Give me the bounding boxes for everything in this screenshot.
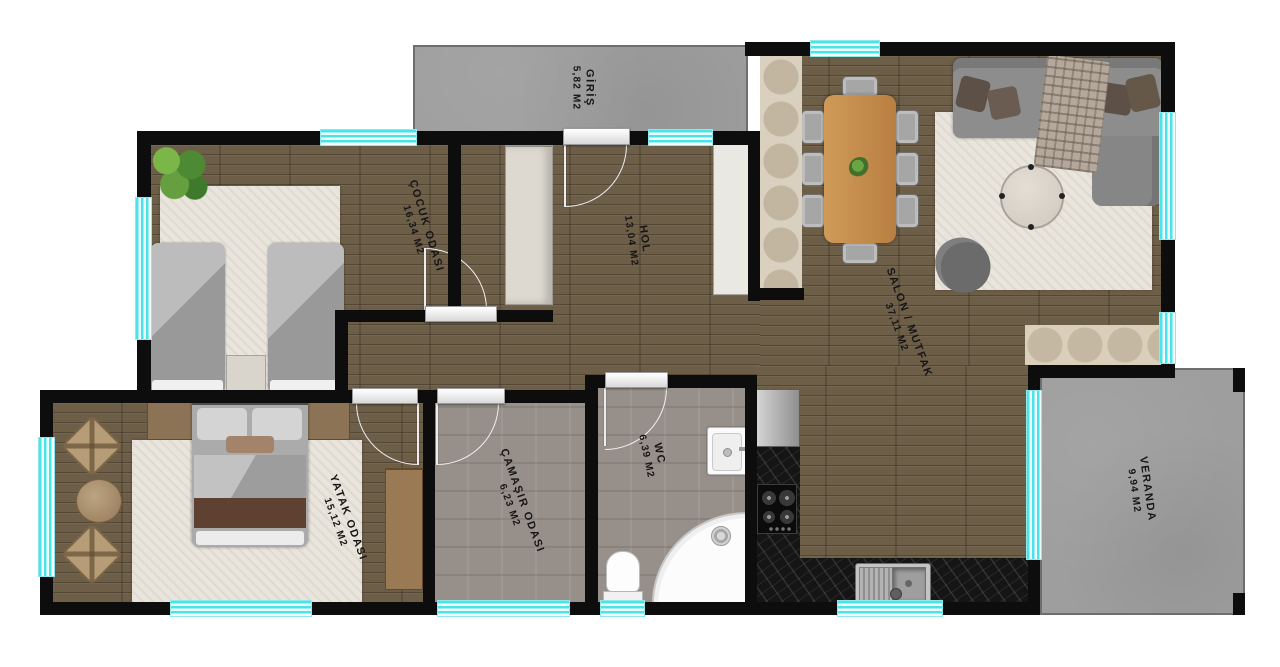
- window: [38, 437, 55, 577]
- pouf: [76, 479, 122, 523]
- single-bed: [268, 243, 344, 395]
- bed-cushion: [226, 436, 274, 453]
- entry-runner-rug: [760, 56, 802, 288]
- dining-chair: [895, 152, 919, 186]
- dining-table: [824, 95, 896, 243]
- nightstand: [303, 400, 350, 440]
- cooktop: [757, 484, 797, 534]
- door-leaf: [436, 403, 438, 465]
- table-foot: [1059, 193, 1065, 199]
- entry-wardrobe: [713, 140, 749, 295]
- wall: [585, 602, 1040, 615]
- dining-chair: [801, 110, 825, 144]
- shower-drain: [711, 526, 731, 546]
- window: [437, 600, 570, 617]
- nightstand: [226, 355, 266, 391]
- window: [648, 129, 713, 146]
- window: [810, 40, 880, 57]
- window: [135, 197, 152, 340]
- window: [837, 600, 943, 617]
- bed-duvet: [194, 455, 306, 499]
- kitchen-sink: [855, 563, 931, 603]
- dining-chair: [895, 194, 919, 228]
- door-leaf: [604, 388, 606, 446]
- bed-blanket: [194, 498, 306, 528]
- sofa-pillow: [986, 85, 1021, 120]
- wall: [585, 375, 598, 615]
- plant-icon: [146, 141, 214, 207]
- bedroom-wardrobe: [385, 468, 423, 590]
- faucet: [890, 588, 902, 600]
- wall: [745, 375, 757, 615]
- wall: [748, 131, 760, 301]
- table-centerpiece-plant: [849, 157, 871, 179]
- window: [600, 600, 645, 617]
- entry-door: [563, 128, 630, 145]
- room-area: 5,82 M2: [571, 66, 582, 111]
- window: [170, 600, 312, 617]
- room-label-giris: GİRİŞ 5,82 M2: [571, 66, 596, 111]
- basin-bowl: [712, 433, 742, 471]
- sofa-chaise: [1092, 136, 1162, 206]
- wall: [448, 131, 461, 322]
- single-bed: [150, 243, 225, 395]
- toilet: [603, 551, 643, 607]
- door-leaf: [564, 145, 566, 207]
- children-room-door: [425, 306, 497, 322]
- bedroom-door: [352, 388, 418, 404]
- sofa-blanket: [1033, 55, 1110, 174]
- nightstand: [147, 400, 193, 440]
- table-foot: [1028, 224, 1034, 230]
- bed-footboard: [196, 531, 304, 545]
- dining-chair: [895, 110, 919, 144]
- wall: [1028, 365, 1175, 378]
- basin-drain: [723, 448, 732, 457]
- veranda-door-mat: [1025, 325, 1168, 365]
- dining-chair: [801, 152, 825, 186]
- table-foot: [999, 193, 1005, 199]
- wc-door: [605, 372, 668, 388]
- toilet-bowl: [606, 551, 640, 593]
- room-name: GİRİŞ: [584, 66, 596, 111]
- window: [1026, 390, 1042, 560]
- window: [1159, 112, 1176, 240]
- floor-plan: GİRİŞ 5,82 M2 ÇOCUK ODASI 16,34 M2 HOL 1…: [0, 0, 1280, 667]
- window: [1159, 312, 1176, 364]
- wall: [1233, 593, 1245, 615]
- sink-drainboard: [859, 567, 893, 601]
- sink-drain: [905, 580, 912, 587]
- wall: [423, 390, 435, 615]
- laundry-door: [437, 388, 505, 404]
- door-leaf: [417, 403, 419, 465]
- window: [320, 129, 417, 146]
- double-bed: [192, 397, 308, 547]
- wall: [1233, 368, 1245, 392]
- hall-wardrobe: [505, 145, 553, 305]
- table-foot: [1028, 164, 1034, 170]
- coffee-table: [1000, 165, 1064, 229]
- dining-chair: [801, 194, 825, 228]
- washbasin: [707, 427, 749, 475]
- dining-chair: [842, 242, 878, 264]
- refrigerator: [755, 389, 800, 447]
- wall: [748, 288, 804, 300]
